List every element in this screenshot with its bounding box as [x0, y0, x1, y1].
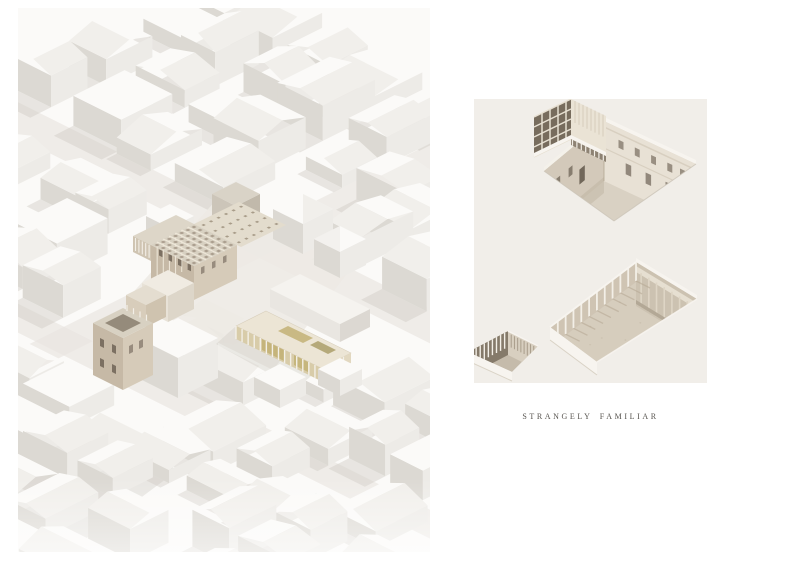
city-model-render	[18, 8, 430, 552]
figure-caption: STRANGELY FAMILIAR	[474, 412, 707, 421]
city-model-figure	[18, 8, 430, 552]
presentation-board: STRANGELY FAMILIAR	[0, 0, 800, 566]
courtyards-panel	[474, 99, 707, 383]
courtyard-fragments-render	[474, 99, 707, 383]
